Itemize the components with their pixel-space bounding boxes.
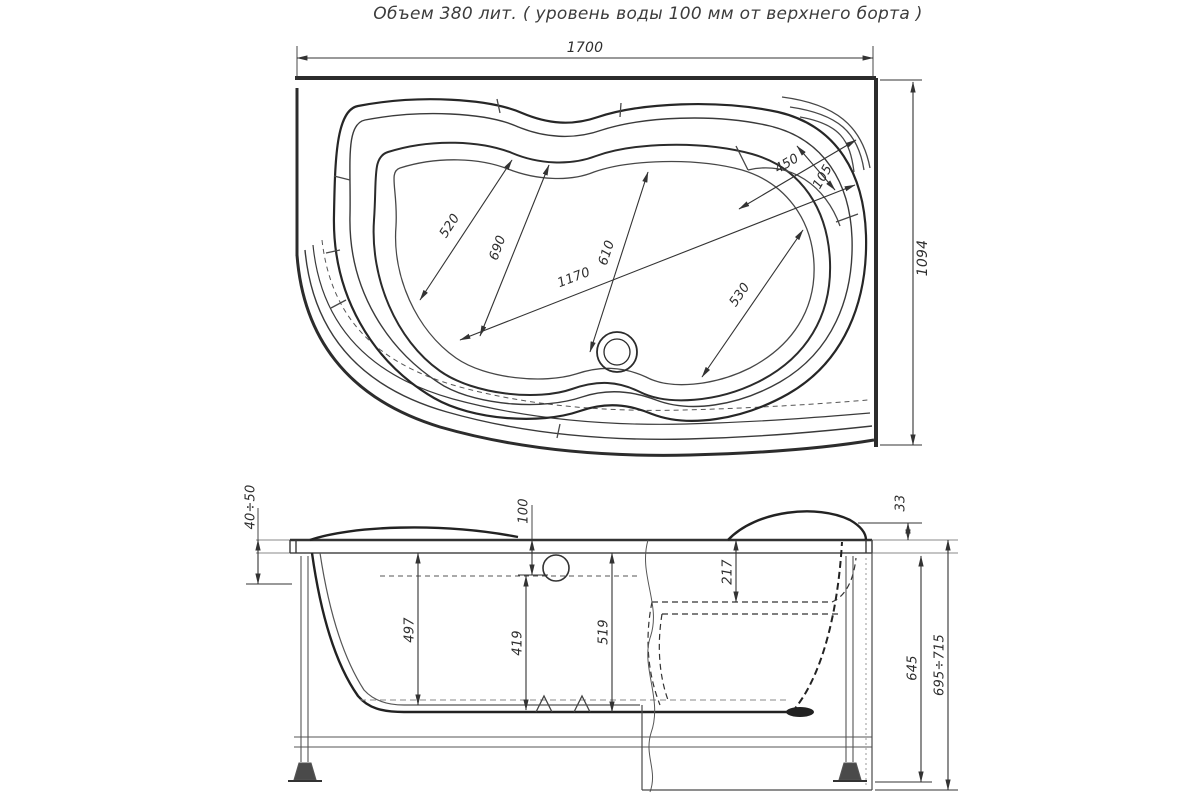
- headrest-and-ticks: [326, 97, 870, 438]
- dim-label-body-height: 645: [906, 655, 921, 680]
- dim-label-foot-adjust: 40÷50: [244, 485, 259, 530]
- dim-label-water-level: 100: [517, 498, 532, 523]
- frame-and-legs: [288, 556, 872, 781]
- dim-label-rim-height: 33: [894, 495, 909, 512]
- side-view-elevation: [246, 505, 958, 792]
- wall-lines: [295, 78, 876, 447]
- corner-panel-outline: [642, 540, 872, 790]
- basin-contours: [374, 143, 831, 401]
- dim-label-depth-center: 419: [511, 630, 526, 655]
- dim-label-overall-depth: 1094: [915, 240, 931, 276]
- dim-label-depth-drain: 519: [597, 619, 612, 644]
- drawing-linework: [0, 0, 1200, 800]
- dim-label-overall-width: 1700: [567, 40, 603, 56]
- bathtub-technical-drawing: Объем 380 лит. ( уровень воды 100 мм от …: [0, 0, 1200, 800]
- seat-section-dashed: [648, 558, 856, 705]
- dim-label-depth-left: 497: [403, 617, 418, 642]
- drain-circle-plan: [597, 332, 637, 372]
- dim-label-seat-depth: 217: [721, 559, 736, 584]
- dim-label-total-height: 695÷715: [933, 634, 948, 696]
